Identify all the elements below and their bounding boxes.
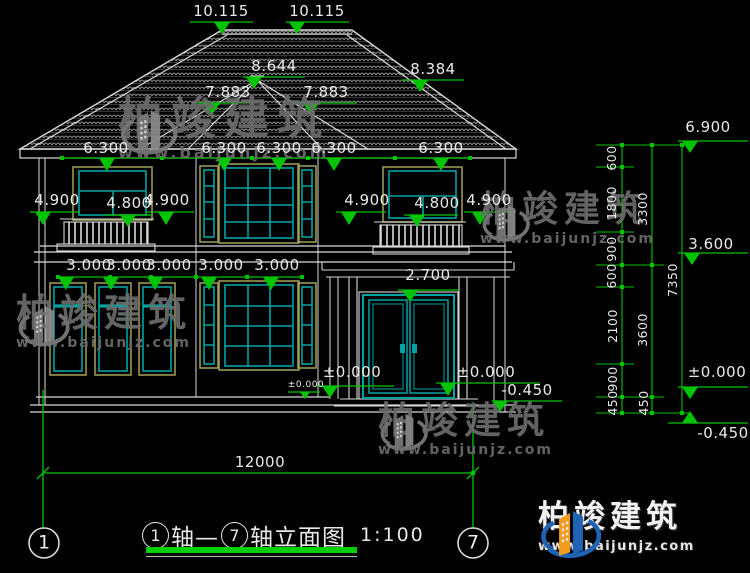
watermark-left: 柏竣建筑 www.baijunjz.com (16, 294, 192, 350)
elev-label-floor1: 3.000 (198, 258, 243, 273)
elev-label-floor2: 4.900 (34, 193, 79, 208)
elev-label-floor1: 3.000 (254, 258, 299, 273)
elev-label-turret-left: 7.883 (205, 85, 250, 100)
title-axis-start: 1 (142, 522, 169, 549)
dim-label: 3600 (637, 313, 650, 347)
balconies (57, 219, 469, 254)
dim-label: 7350 (667, 263, 680, 297)
elev-label-hip: 8.384 (410, 62, 455, 77)
dim-label: 600 (606, 145, 619, 170)
brand-logo-icon (538, 502, 604, 564)
elev-label-step: -0.450 (501, 383, 552, 398)
dim-label: 1800 (606, 186, 619, 220)
dim-label: 450 (607, 390, 620, 415)
elev-label-ridge-right: 10.115 (289, 4, 345, 19)
door-handles (400, 344, 417, 353)
title-underline-bar (146, 547, 357, 553)
elev-label-floor2: 4.900 (344, 193, 389, 208)
elev-label-floor1: 3.000 (106, 258, 151, 273)
title-underline-thin (146, 556, 357, 557)
elev-label-right-top: 6.900 (685, 120, 730, 135)
cad-elevation-sheet: 柏竣建筑 www.baijunjz.com 柏竣建筑 www.baijunjz.… (0, 0, 750, 573)
axis-bubble-1: 1 (38, 534, 50, 553)
elev-label-right-mid: 3.600 (688, 237, 733, 252)
dim-label: 900 (606, 236, 619, 261)
elev-label-zero-center: ±0.000 (323, 365, 382, 380)
elev-label-peak: 8.644 (251, 59, 296, 74)
watermark-logo-icon (16, 294, 72, 356)
elev-label-zero-small: ±0.000 (288, 381, 324, 390)
dim-label-total-width: 12000 (235, 455, 285, 470)
dim-label: 900 (607, 366, 620, 391)
title-scale: 1:100 (360, 524, 425, 546)
axis-bubble-7: 7 (467, 534, 479, 553)
elevation-drawing (0, 0, 750, 573)
elev-label-eave: 6.300 (311, 141, 356, 156)
elev-label-door: 2.700 (405, 268, 450, 283)
elev-label-zero-right: ±0.000 (457, 365, 516, 380)
elev-label-eave: 6.300 (256, 141, 301, 156)
watermark-logo-icon (378, 402, 430, 460)
elev-label-eave: 6.300 (418, 141, 463, 156)
elev-label-eave: 6.300 (83, 141, 128, 156)
elev-label-floor2: 4.900 (466, 193, 511, 208)
dim-label: 600 (606, 263, 619, 288)
elev-label-eave: 6.300 (201, 141, 246, 156)
elev-label-right-minus: -0.450 (697, 426, 748, 441)
title-axis-end: 7 (221, 522, 248, 549)
elev-label-ridge-left: 10.115 (193, 4, 249, 19)
brand-logo-block: 柏竣建筑 www.baijunjz.com (538, 502, 695, 554)
elev-label-floor1: 3.000 (146, 258, 191, 273)
elev-label-floor2: 4.900 (144, 193, 189, 208)
elev-label-floor2: 4.800 (414, 196, 459, 211)
watermark-bottom: 柏竣建筑 www.baijunjz.com (378, 402, 553, 457)
dim-label: 2100 (607, 309, 620, 343)
elev-label-turret-right: 7.883 (303, 85, 348, 100)
elev-label-right-zero: ±0.000 (688, 365, 747, 380)
elev-label-floor1: 3.000 (66, 258, 111, 273)
dim-label: 450 (638, 390, 651, 415)
dim-label: 3300 (637, 192, 650, 226)
